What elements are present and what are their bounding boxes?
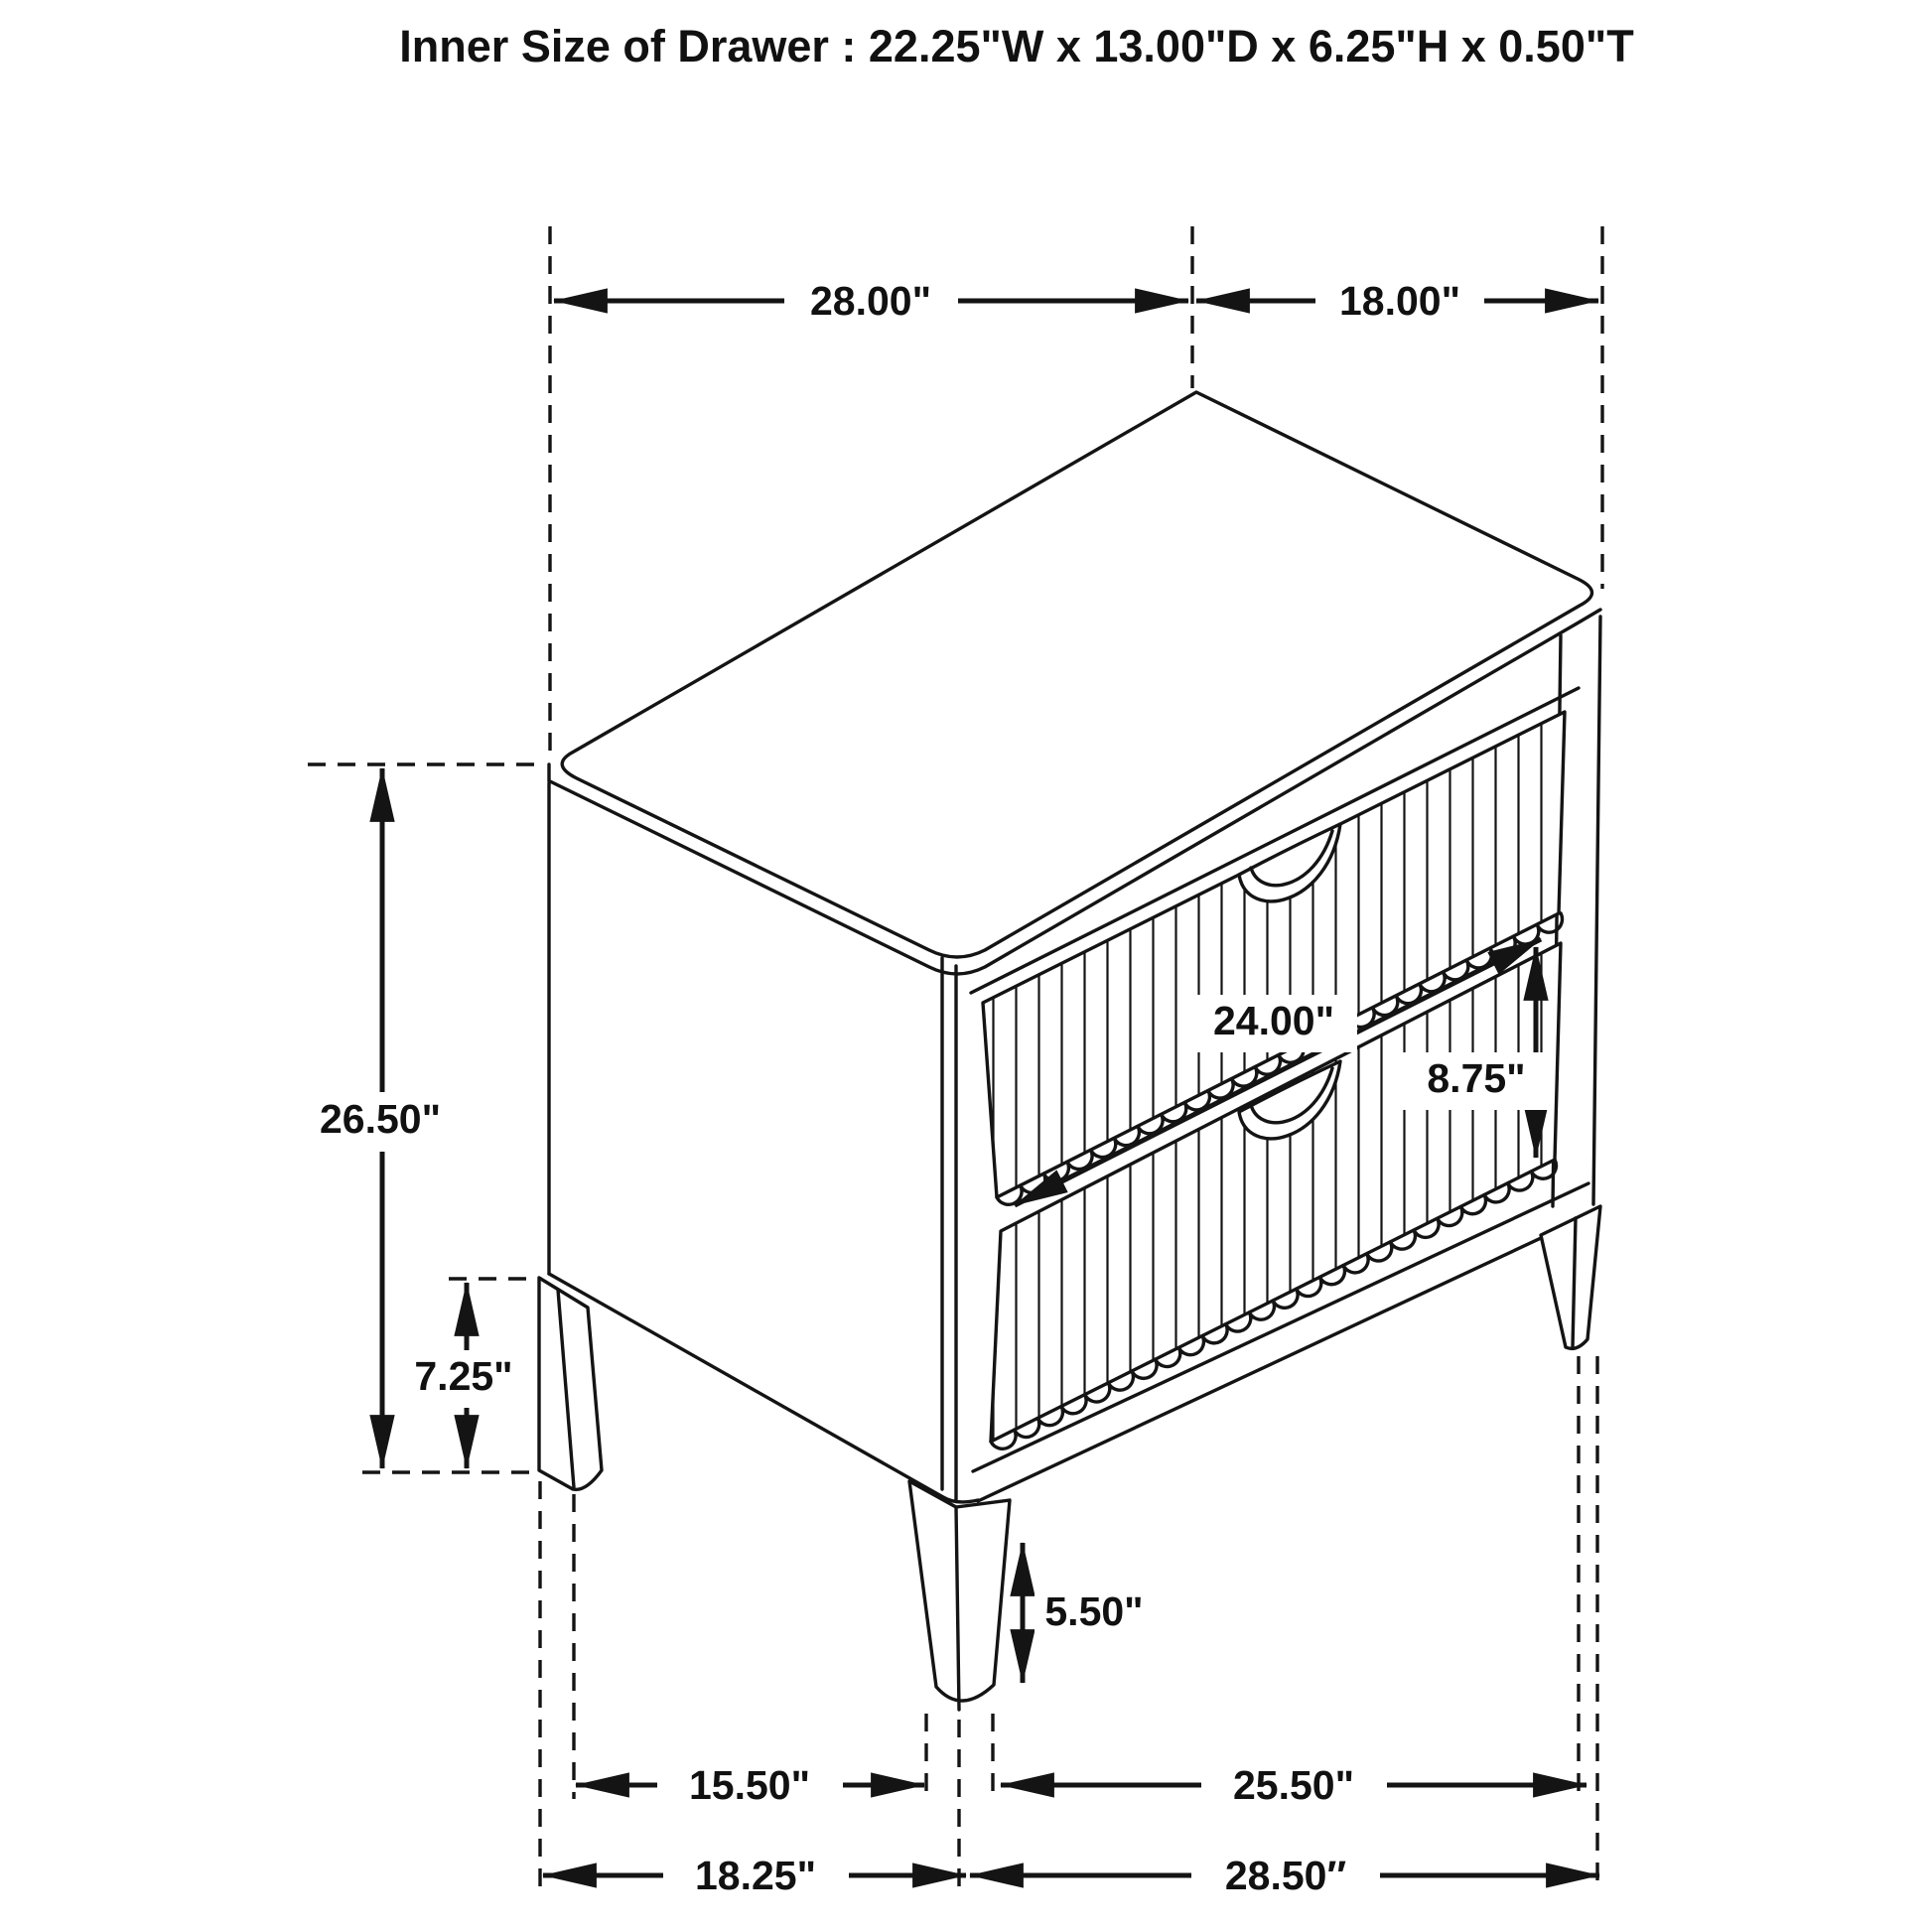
dim-label-front-leg-height: 5.50": [1044, 1588, 1143, 1634]
dimension-drawing-page: Inner Size of Drawer : 22.25"W x 13.00"D…: [0, 0, 1932, 1932]
dim-label-left-leg-height: 7.25": [414, 1353, 512, 1399]
nightstand-dimension-diagram: Inner Size of Drawer : 22.25"W x 13.00"D…: [0, 0, 1932, 1932]
dim-label-drawer-front-height: 8.75": [1427, 1055, 1525, 1101]
dim-label-overall-height: 26.50": [320, 1096, 441, 1142]
dim-label-inner-span-left: 15.50": [689, 1762, 810, 1808]
dim-label-outer-span-left: 18.25": [695, 1853, 816, 1898]
dim-label-outer-span-right: 28.50″: [1225, 1853, 1346, 1898]
dim-label-top-width: 28.00": [810, 278, 931, 324]
dim-label-drawer-width: 24.00": [1213, 998, 1334, 1043]
drawing-title: Inner Size of Drawer : 22.25"W x 13.00"D…: [399, 21, 1633, 71]
dim-label-top-depth: 18.00": [1339, 278, 1460, 324]
dim-label-inner-span-right: 25.50": [1233, 1762, 1354, 1808]
